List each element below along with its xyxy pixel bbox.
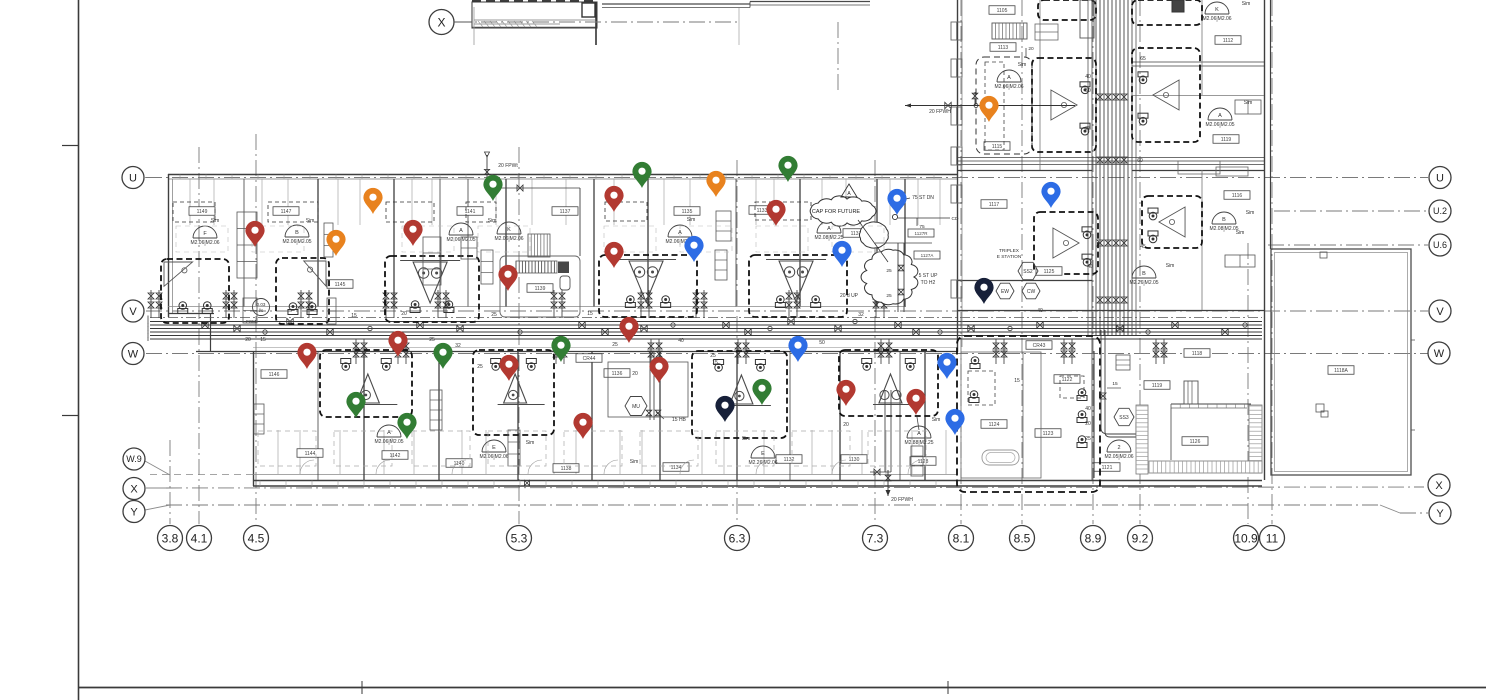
svg-text:15: 15 — [260, 337, 266, 343]
svg-text:1146: 1146 — [269, 372, 280, 378]
svg-text:15: 15 — [1112, 381, 1118, 387]
svg-text:M2.88|M2.25: M2.88|M2.25 — [904, 440, 933, 446]
svg-text:1113: 1113 — [998, 45, 1009, 51]
svg-text:MU: MU — [632, 404, 640, 410]
svg-text:Sim: Sim — [1166, 263, 1175, 269]
svg-text:1126: 1126 — [1190, 439, 1201, 445]
svg-text:1145: 1145 — [335, 282, 346, 288]
svg-text:1132: 1132 — [784, 457, 795, 463]
svg-text:75: 75 — [919, 224, 925, 230]
svg-text:M2.06|M2.06: M2.06|M2.06 — [479, 454, 508, 460]
svg-text:65: 65 — [1140, 56, 1146, 62]
svg-text:6.3: 6.3 — [729, 531, 746, 545]
svg-text:20: 20 — [1085, 421, 1091, 427]
svg-text:Sim: Sim — [630, 459, 639, 465]
svg-text:15: 15 — [587, 311, 593, 317]
svg-text:20 FPWH: 20 FPWH — [891, 497, 913, 503]
svg-text:M2.06|M2.05: M2.06|M2.05 — [1205, 122, 1234, 128]
svg-text:1142: 1142 — [390, 453, 401, 459]
svg-text:40: 40 — [678, 338, 684, 344]
svg-text:32: 32 — [858, 312, 864, 318]
svg-text:FCM: FCM — [246, 319, 256, 324]
svg-text:1122: 1122 — [1062, 377, 1073, 383]
svg-text:SS2: SS2 — [1023, 269, 1033, 275]
svg-text:1138: 1138 — [561, 466, 572, 472]
svg-text:U: U — [1436, 172, 1444, 184]
svg-text:Sim: Sim — [1236, 230, 1245, 236]
svg-text:32: 32 — [455, 343, 461, 349]
svg-text:75 ST DN: 75 ST DN — [912, 195, 934, 201]
svg-text:M2.08|M2.05: M2.08|M2.05 — [1209, 226, 1238, 232]
svg-text:B: B — [1142, 271, 1146, 277]
svg-text:1127A: 1127A — [921, 253, 934, 258]
svg-text:25: 25 — [491, 312, 497, 318]
svg-text:3.8: 3.8 — [162, 531, 179, 545]
svg-text:W: W — [1434, 348, 1445, 360]
svg-text:K: K — [507, 227, 511, 233]
svg-text:1144: 1144 — [305, 451, 316, 457]
svg-text:A: A — [459, 228, 463, 234]
svg-text:E STATION: E STATION — [997, 254, 1022, 260]
svg-text:Sim: Sim — [488, 218, 497, 224]
svg-text:B: B — [295, 230, 299, 236]
svg-text:20: 20 — [632, 371, 638, 377]
svg-text:1124: 1124 — [989, 422, 1000, 428]
svg-text:4.5: 4.5 — [248, 531, 265, 545]
svg-text:20: 20 — [1028, 46, 1034, 52]
svg-text:25: 25 — [429, 337, 435, 343]
svg-text:M2.06|M2.05: M2.06|M2.05 — [282, 239, 311, 245]
svg-text:1118: 1118 — [1192, 351, 1203, 357]
svg-text:Sim: Sim — [1242, 1, 1251, 7]
svg-text:20 FPWt: 20 FPWt — [498, 163, 518, 169]
svg-text:1119: 1119 — [1221, 137, 1232, 143]
svg-text:M2.08|M2.25: M2.08|M2.25 — [814, 235, 843, 241]
svg-text:K: K — [1215, 7, 1219, 13]
svg-text:Sim: Sim — [1018, 62, 1027, 68]
svg-text:8.1: 8.1 — [953, 531, 970, 545]
svg-text:4.1: 4.1 — [191, 531, 208, 545]
svg-text:M2.06|M2.06: M2.06|M2.06 — [190, 240, 219, 246]
svg-text:Y: Y — [1436, 508, 1444, 520]
svg-text:1136: 1136 — [612, 371, 623, 377]
svg-text:11: 11 — [1266, 531, 1279, 545]
svg-text:1123: 1123 — [1043, 431, 1054, 437]
svg-text:15: 15 — [351, 313, 357, 319]
svg-text:1119: 1119 — [1152, 383, 1163, 389]
svg-text:1116: 1116 — [1232, 193, 1243, 199]
svg-text:CR44: CR44 — [583, 356, 596, 362]
svg-text:1147: 1147 — [281, 209, 292, 215]
svg-text:B: B — [1222, 217, 1226, 223]
svg-text:5 ST UP: 5 ST UP — [919, 273, 938, 279]
svg-text:V: V — [129, 306, 137, 318]
svg-text:Sim: Sim — [932, 417, 941, 423]
svg-text:l/s: l/s — [259, 308, 264, 313]
svg-text:CAP FOR FUTURE: CAP FOR FUTURE — [812, 209, 861, 215]
svg-text:U.6: U.6 — [1433, 240, 1447, 250]
svg-text:Sim: Sim — [526, 440, 535, 446]
svg-text:8.9: 8.9 — [1085, 531, 1102, 545]
svg-text:7.3: 7.3 — [867, 531, 884, 545]
svg-text:U.2: U.2 — [1433, 206, 1447, 216]
svg-text:20: 20 — [401, 311, 407, 317]
svg-text:Y: Y — [130, 506, 138, 518]
svg-text:Sim: Sim — [306, 218, 315, 224]
svg-text:M2.06|M2.06: M2.06|M2.06 — [1202, 16, 1231, 22]
svg-text:1121: 1121 — [1102, 465, 1113, 471]
svg-text:X: X — [437, 15, 445, 29]
svg-text:15 HB: 15 HB — [672, 417, 687, 423]
svg-text:X: X — [130, 483, 138, 495]
svg-text:20: 20 — [843, 422, 849, 428]
svg-text:A: A — [1007, 75, 1011, 81]
svg-text:20 FPWH: 20 FPWH — [929, 109, 951, 115]
svg-text:1117: 1117 — [989, 202, 1000, 208]
svg-text:CR43: CR43 — [1033, 343, 1046, 349]
svg-text:20: 20 — [245, 337, 251, 343]
svg-text:20 d UP: 20 d UP — [840, 293, 859, 299]
svg-text:Sim: Sim — [1246, 210, 1255, 216]
svg-text:25: 25 — [612, 342, 618, 348]
svg-text:1137: 1137 — [560, 209, 571, 215]
svg-text:Sim: Sim — [742, 436, 751, 442]
svg-text:25: 25 — [477, 364, 483, 370]
svg-text:U: U — [129, 172, 137, 184]
svg-text:Sim: Sim — [687, 217, 696, 223]
svg-text:EW: EW — [1001, 289, 1009, 295]
svg-text:1105: 1105 — [997, 8, 1008, 14]
svg-text:1133: 1133 — [757, 208, 768, 214]
svg-text:40: 40 — [1085, 406, 1091, 412]
svg-text:CW: CW — [1027, 289, 1036, 295]
svg-text:A: A — [917, 431, 921, 437]
svg-text:1118A: 1118A — [1334, 368, 1348, 374]
svg-text:2: 2 — [1117, 445, 1120, 451]
svg-text:1112: 1112 — [1223, 38, 1234, 44]
svg-text:0.03: 0.03 — [257, 302, 266, 307]
svg-text:V: V — [1436, 306, 1444, 318]
svg-text:50: 50 — [819, 340, 825, 346]
svg-text:E: E — [761, 451, 765, 457]
svg-text:M2.06|M2.06: M2.06|M2.06 — [494, 236, 523, 242]
svg-text:8.5: 8.5 — [1014, 531, 1031, 545]
svg-text:25: 25 — [886, 268, 892, 274]
svg-text:15: 15 — [1014, 378, 1020, 384]
svg-text:1127R: 1127R — [915, 231, 929, 236]
svg-text:W.9: W.9 — [126, 454, 142, 464]
svg-text:W: W — [128, 348, 139, 360]
svg-text:9.2: 9.2 — [1132, 531, 1149, 545]
svg-text:M2.26|M2.06: M2.26|M2.06 — [748, 460, 777, 466]
svg-text:5.3: 5.3 — [511, 531, 528, 545]
svg-text:25: 25 — [886, 293, 892, 299]
svg-text:X: X — [1435, 480, 1443, 492]
svg-text:25: 25 — [710, 353, 716, 359]
svg-text:E: E — [492, 445, 496, 451]
svg-text:M2.06|M2.06: M2.06|M2.06 — [994, 84, 1023, 90]
svg-text:TRIPLEX: TRIPLEX — [999, 248, 1020, 254]
svg-text:A: A — [1218, 113, 1222, 119]
svg-text:SS3: SS3 — [1119, 415, 1129, 421]
svg-text:1125: 1125 — [1044, 269, 1055, 275]
svg-text:M2.05|M2.06: M2.05|M2.06 — [1104, 454, 1133, 460]
svg-text:M2.26|M2.05: M2.26|M2.05 — [1129, 280, 1158, 286]
svg-text:A: A — [827, 226, 831, 232]
svg-text:40: 40 — [1085, 74, 1091, 80]
svg-text:1149: 1149 — [197, 209, 208, 215]
svg-text:1139: 1139 — [535, 286, 546, 292]
svg-text:M2.06|M2.05: M2.06|M2.05 — [374, 439, 403, 445]
svg-text:1135: 1135 — [682, 209, 693, 215]
svg-text:10.9: 10.9 — [1234, 531, 1258, 545]
svg-text:1115: 1115 — [992, 144, 1003, 150]
svg-text:TO H2: TO H2 — [921, 280, 936, 286]
